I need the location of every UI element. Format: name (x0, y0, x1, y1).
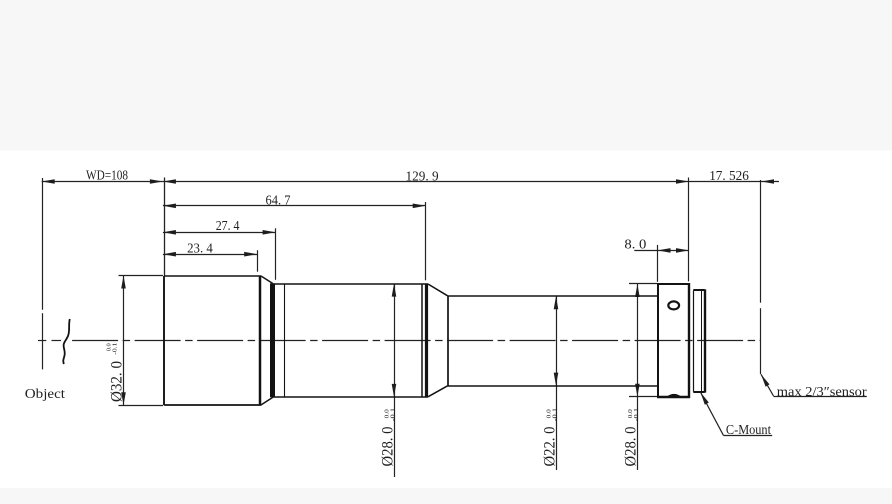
svg-text:8. 0: 8. 0 (624, 238, 646, 253)
svg-text:max 2/3″sensor: max 2/3″sensor (777, 385, 867, 400)
svg-text:64. 7: 64. 7 (266, 193, 291, 208)
svg-text:Object: Object (25, 387, 65, 402)
svg-text:WD=108: WD=108 (86, 169, 128, 184)
svg-text:Ø32. 0: Ø32. 0 (109, 361, 126, 402)
svg-text:Ø28. 0: Ø28. 0 (379, 426, 396, 466)
svg-text:Ø28. 0: Ø28. 0 (623, 426, 640, 466)
svg-text:-0.1: -0.1 (390, 408, 397, 422)
svg-text:129. 9: 129. 9 (406, 169, 439, 184)
svg-text:-0.1: -0.1 (633, 408, 640, 422)
svg-text:-0.1: -0.1 (111, 343, 118, 355)
svg-text:-0.1: -0.1 (552, 408, 559, 422)
svg-text:17. 526: 17. 526 (709, 169, 749, 184)
svg-text:C-Mount: C-Mount (726, 423, 771, 438)
svg-text:Ø22. 0: Ø22. 0 (541, 426, 558, 466)
svg-text:23. 4: 23. 4 (187, 242, 213, 257)
svg-text:27. 4: 27. 4 (216, 219, 240, 234)
